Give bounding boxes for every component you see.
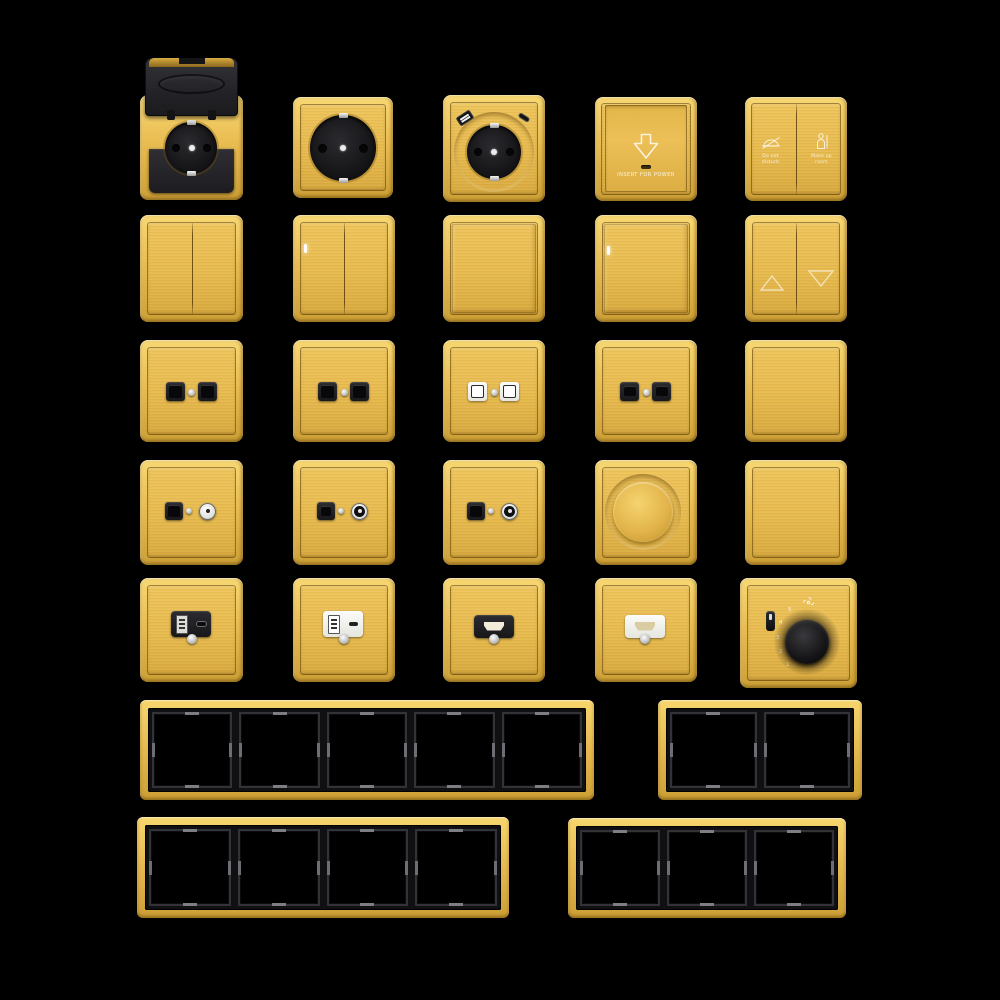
card-slot <box>641 165 651 169</box>
socket-clip-top <box>490 123 499 128</box>
rocker-divider <box>192 223 193 314</box>
dual-phone-socket-black <box>595 340 697 442</box>
hdmi-port <box>635 622 655 631</box>
thermostat-knob <box>785 620 829 664</box>
waterproof-socket-with-lid <box>140 58 243 200</box>
screw <box>643 389 650 396</box>
socket-hole-right <box>359 144 368 153</box>
led-indicator <box>607 246 610 255</box>
coax-connector <box>351 503 368 520</box>
rotary-dimmer <box>595 460 697 565</box>
tv-sat-socket <box>293 460 395 565</box>
socket-clip-bottom <box>339 178 348 183</box>
screw <box>489 634 499 644</box>
tv-sat-socket-2 <box>443 460 545 565</box>
frame-window <box>152 712 232 788</box>
rocker <box>604 224 688 313</box>
socket-clip-top <box>339 113 348 118</box>
hotel-service-switch: Do not disturb Make up room <box>745 97 847 201</box>
frame-inner <box>576 826 838 910</box>
frame-5-gang <box>140 700 594 800</box>
frame-window <box>502 712 582 788</box>
socket-face <box>300 467 388 558</box>
switch-face <box>602 222 690 315</box>
frame-window <box>670 712 757 788</box>
power-toggle <box>766 611 775 631</box>
product-collage: INSERT FOR POWER Do not disturb <box>0 0 1000 1000</box>
dual-data-socket-white <box>443 340 545 442</box>
frame-window <box>580 830 660 906</box>
data-port-right <box>198 382 217 401</box>
blank-plate <box>745 340 847 442</box>
key-card-switch: INSERT FOR POWER <box>595 97 697 201</box>
mur-label: Make up room <box>796 154 847 166</box>
socket-hole-right <box>506 148 514 156</box>
tv-data-socket <box>140 460 243 565</box>
socket-hole-left <box>474 148 482 156</box>
single-rocker-switch-led <box>595 215 697 322</box>
blank-face <box>752 467 840 558</box>
socket-hole-right <box>203 144 211 152</box>
usb-a-port <box>176 615 188 634</box>
fan-icon <box>802 596 815 609</box>
led-indicator <box>304 244 307 253</box>
double-rocker-switch <box>140 215 243 322</box>
single-rocker-switch <box>443 215 545 322</box>
dual-data-socket-black-2 <box>293 340 395 442</box>
socket-clip-bottom <box>187 171 196 176</box>
schuko-socket-usb <box>443 95 545 202</box>
blank-face <box>752 347 840 435</box>
schuko-socket <box>293 97 393 198</box>
hdmi-socket-black <box>443 578 545 682</box>
triangle-up-icon <box>759 274 785 292</box>
socket-clip-bottom <box>490 176 499 181</box>
blank-plate-2 <box>745 460 847 565</box>
hdmi-port <box>484 622 504 631</box>
rocker-divider <box>796 104 797 194</box>
data-port <box>467 502 485 520</box>
arrow-down-icon <box>631 133 661 160</box>
screw <box>640 634 650 644</box>
data-port <box>317 502 335 520</box>
data-port-left <box>468 382 487 401</box>
screw <box>488 508 494 514</box>
lid-notch <box>179 58 205 64</box>
curtain-switch <box>745 215 847 322</box>
frame-window <box>764 712 851 788</box>
screw <box>339 634 349 644</box>
screw <box>186 508 192 514</box>
frame-4-gang <box>137 817 509 918</box>
dnd-label: Do not disturb <box>745 154 796 166</box>
socket-face <box>450 467 538 558</box>
frame-2-gang <box>658 700 862 800</box>
lid-hinge-right <box>208 110 216 120</box>
rocker-divider <box>796 223 797 314</box>
usb-a-port <box>328 615 340 634</box>
frame-window <box>239 712 319 788</box>
data-port-left <box>318 382 337 401</box>
frame-inner <box>145 825 501 910</box>
screw <box>341 389 348 396</box>
screw <box>338 508 344 514</box>
dimmer-knob <box>613 482 673 542</box>
usb-charger-black <box>140 578 243 682</box>
fan-coil-thermostat: 5 4 3 2 1 <box>740 578 857 688</box>
coax-connector <box>199 503 216 520</box>
frame-window <box>754 830 834 906</box>
switch-face <box>450 222 538 315</box>
frame-inner <box>148 708 586 792</box>
data-port-right <box>350 382 369 401</box>
lid-oval-recess <box>158 74 225 94</box>
frame-window <box>327 712 407 788</box>
frame-window <box>414 712 494 788</box>
rocker <box>452 224 536 313</box>
rocker-divider <box>344 223 345 314</box>
socket-clip-top <box>187 120 196 125</box>
card-panel: INSERT FOR POWER <box>605 105 687 192</box>
hdmi-socket-white <box>595 578 697 682</box>
usb-c-port <box>349 622 358 626</box>
make-up-room-icon <box>815 133 829 150</box>
screw <box>187 634 197 644</box>
coax-connector <box>501 503 518 520</box>
socket-center-pin <box>340 145 346 151</box>
card-label: INSERT FOR POWER <box>605 172 687 178</box>
frame-window <box>667 830 747 906</box>
phone-port-left <box>620 382 639 401</box>
usb-charger-white <box>293 578 395 682</box>
data-port-right <box>500 382 519 401</box>
socket-center-pin <box>189 145 195 151</box>
socket-hole-left <box>172 144 180 152</box>
lid-hinge-left <box>167 110 175 120</box>
frame-3-gang <box>568 818 846 918</box>
screw <box>491 389 498 396</box>
usb-c-port <box>197 622 206 626</box>
triangle-down-icon <box>807 269 835 288</box>
data-port <box>165 502 183 520</box>
frame-window <box>149 829 231 906</box>
dual-data-socket-black <box>140 340 243 442</box>
frame-window <box>238 829 320 906</box>
frame-window <box>327 829 409 906</box>
frame-window <box>415 829 497 906</box>
data-port-left <box>166 382 185 401</box>
socket-center-pin <box>491 149 497 155</box>
screw <box>188 389 195 396</box>
phone-port-right <box>652 382 671 401</box>
flip-lid-open <box>145 58 238 116</box>
socket-hole-left <box>318 144 327 153</box>
double-rocker-switch-led <box>293 215 395 322</box>
frame-inner <box>666 708 854 792</box>
do-not-disturb-icon <box>760 135 782 150</box>
